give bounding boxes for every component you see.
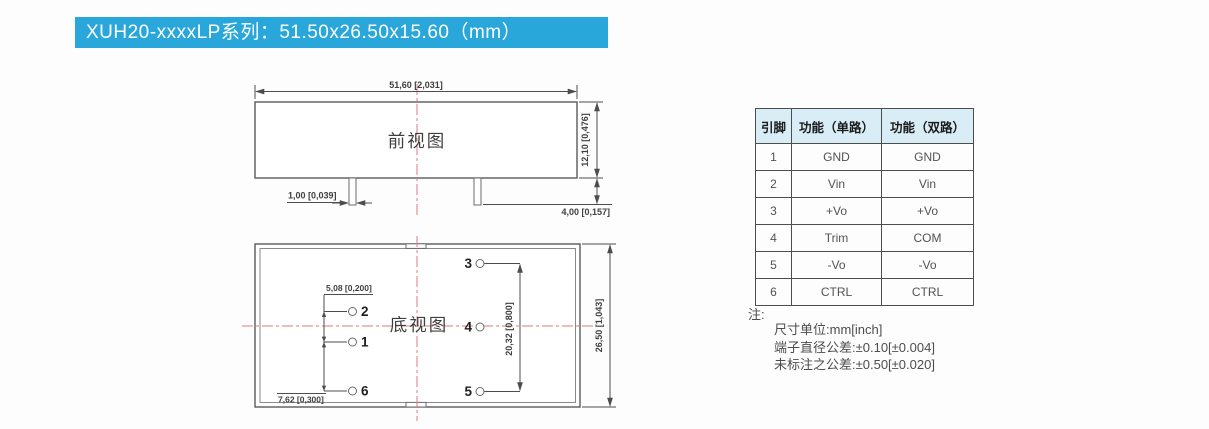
note-terminal-tolerance: 端子直径公差:±0.10[±0.004] (774, 339, 935, 357)
pin-1-pad (349, 338, 357, 346)
pin-4-pad (476, 323, 484, 331)
table-row: 2 Vin Vin (756, 171, 974, 198)
table-row: 3 +Vo +Vo (756, 198, 974, 225)
front-view-pin-left (349, 178, 356, 205)
pin-4-label: 4 (464, 320, 472, 335)
pin-func-dual: CTRL (882, 279, 974, 306)
notes-block: 注: 尺寸单位:mm[inch] 端子直径公差:±0.10[±0.004] 未标… (748, 304, 935, 374)
pin-2-label: 2 (361, 304, 369, 319)
table-header-row: 引脚 功能（单路） 功能（双路） (756, 109, 974, 144)
pin-func-single: GND (792, 144, 882, 171)
datasheet-page: XUH20-xxxxLP系列：51.50x26.50x15.60（mm） 51,… (0, 0, 1209, 429)
col-header-single: 功能（单路） (792, 109, 882, 144)
bottom-notch (406, 402, 426, 407)
dim-pin-span: 20,32 [0,800] (504, 302, 514, 356)
pin-number: 3 (756, 198, 792, 225)
table-row: 6 CTRL CTRL (756, 279, 974, 306)
pin-5-label: 5 (464, 384, 472, 399)
pin-1-label: 1 (361, 335, 369, 350)
pin-5-pad (476, 388, 484, 396)
pin-number: 4 (756, 225, 792, 252)
pin-func-single: CTRL (792, 279, 882, 306)
pin-6-label: 6 (361, 384, 369, 399)
pin-6-pad (349, 387, 357, 395)
pin-func-dual: Vin (882, 171, 974, 198)
pin-func-dual: -Vo (882, 252, 974, 279)
pin-number: 2 (756, 171, 792, 198)
pin-3-label: 3 (464, 256, 472, 271)
pin-number: 1 (756, 144, 792, 171)
pin-func-dual: +Vo (882, 198, 974, 225)
bottom-view-drawing: 2 1 6 5,08 [0,200] 7,62 [0,300] 3 4 5 (242, 236, 616, 421)
table-row: 4 Trim COM (756, 225, 974, 252)
pin-func-dual: COM (882, 225, 974, 252)
pin-3-pad (476, 260, 484, 268)
pin-func-single: +Vo (792, 198, 882, 225)
pin-func-single: Trim (792, 225, 882, 252)
col-header-dual: 功能（双路） (882, 109, 974, 144)
dim-pitch-small: 5,08 [0,200] (326, 283, 372, 293)
pin-func-single: -Vo (792, 252, 882, 279)
table-row: 1 GND GND (756, 144, 974, 171)
pin-2-pad (349, 308, 357, 316)
note-units: 尺寸单位:mm[inch] (774, 321, 935, 339)
dim-bottom-height: 26,50 [1,043] (594, 299, 604, 353)
dim-pin-width: 1,00 [0,039] (288, 191, 337, 201)
note-general-tolerance: 未标注之公差:±0.50[±0.020] (774, 356, 935, 374)
table-row: 5 -Vo -Vo (756, 252, 974, 279)
pin-func-dual: GND (882, 144, 974, 171)
dim-front-width: 51,60 [2,031] (389, 80, 443, 90)
dim-pitch-large: 7,62 [0,300] (278, 395, 324, 405)
col-header-pin: 引脚 (756, 109, 792, 144)
dim-pin-length: 4,00 [0,157] (561, 207, 610, 217)
front-view-label: 前视图 (388, 131, 447, 151)
pin-number: 5 (756, 252, 792, 279)
top-notch (406, 244, 426, 249)
technical-drawing: 51,60 [2,031] 12,10 [0,476] 4,00 [0,157]… (0, 0, 1209, 429)
dim-front-height: 12,10 [0,476] (580, 113, 590, 167)
pin-number: 6 (756, 279, 792, 306)
pin-func-single: Vin (792, 171, 882, 198)
front-view-pin-right (474, 178, 481, 205)
pin-function-table: 引脚 功能（单路） 功能（双路） 1 GND GND 2 Vin Vin 3 +… (755, 108, 974, 306)
bottom-view-label: 底视图 (390, 315, 449, 335)
front-view-drawing: 51,60 [2,031] 12,10 [0,476] 4,00 [0,157]… (255, 80, 612, 218)
